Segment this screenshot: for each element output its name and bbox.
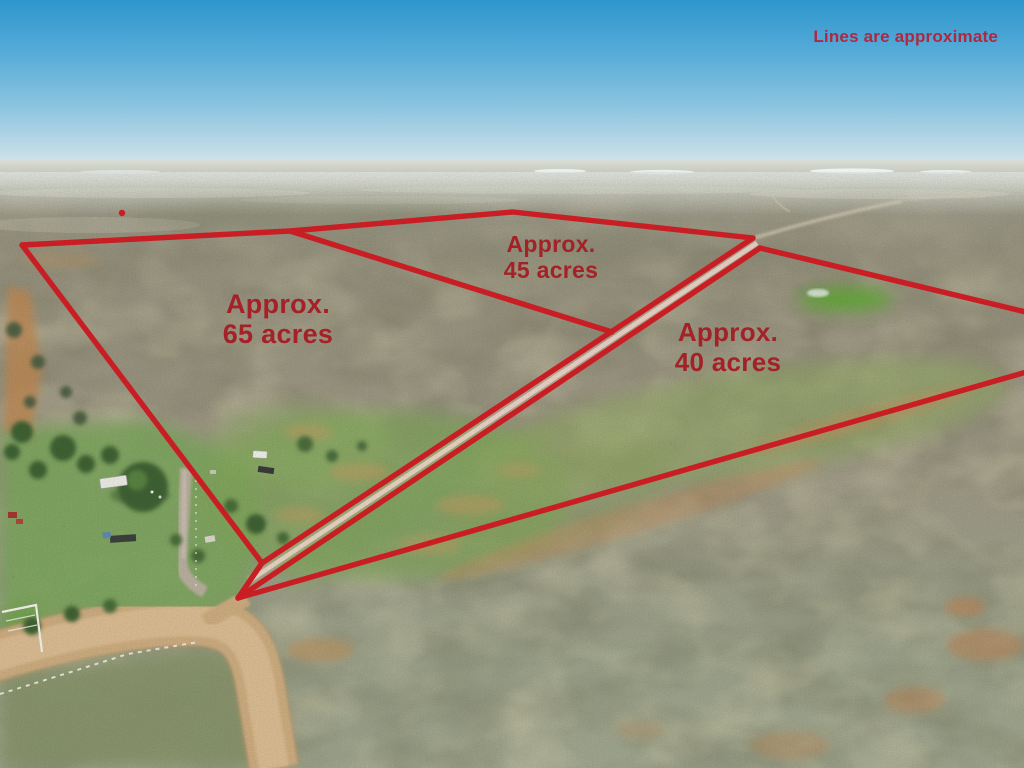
parcel-40-acreage: 40 acres — [675, 347, 782, 377]
disclaimer-text: Lines are approximate — [813, 27, 998, 47]
parcel-label-45-acres: Approx. 45 acres — [504, 231, 599, 283]
parcel-45-acreage: 45 acres — [504, 257, 599, 283]
terrain-photo — [0, 0, 1024, 768]
parcel-45-approx: Approx. — [504, 231, 599, 257]
parcel-65-approx: Approx. — [223, 289, 334, 319]
parcel-40-approx: Approx. — [675, 317, 782, 347]
parcel-label-65-acres: Approx. 65 acres — [223, 289, 334, 349]
aerial-property-photo: Lines are approximate Approx. 65 acres A… — [0, 0, 1024, 768]
sky — [0, 0, 1024, 172]
parcel-65-acreage: 65 acres — [223, 319, 334, 349]
parcel-label-40-acres: Approx. 40 acres — [675, 317, 782, 377]
